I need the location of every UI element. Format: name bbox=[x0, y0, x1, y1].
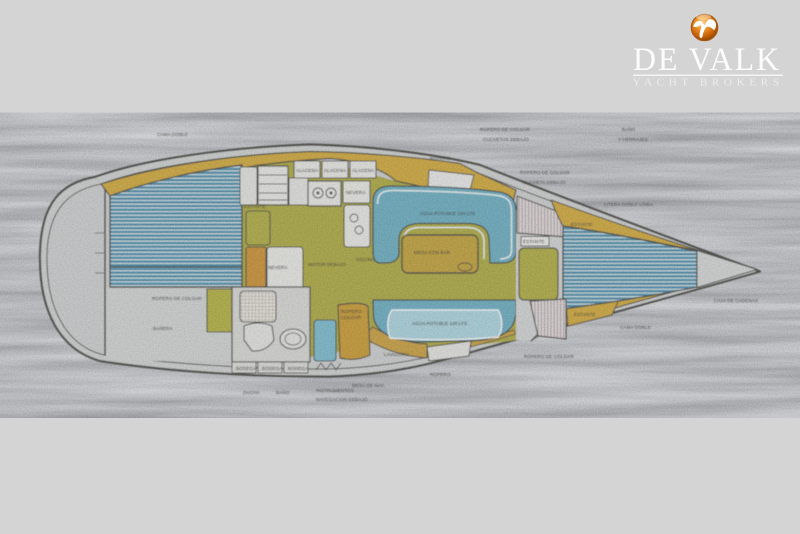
svg-text:YACHT BROKERS: YACHT BROKERS bbox=[633, 78, 784, 89]
svg-text:DE VALK: DE VALK bbox=[633, 42, 781, 78]
